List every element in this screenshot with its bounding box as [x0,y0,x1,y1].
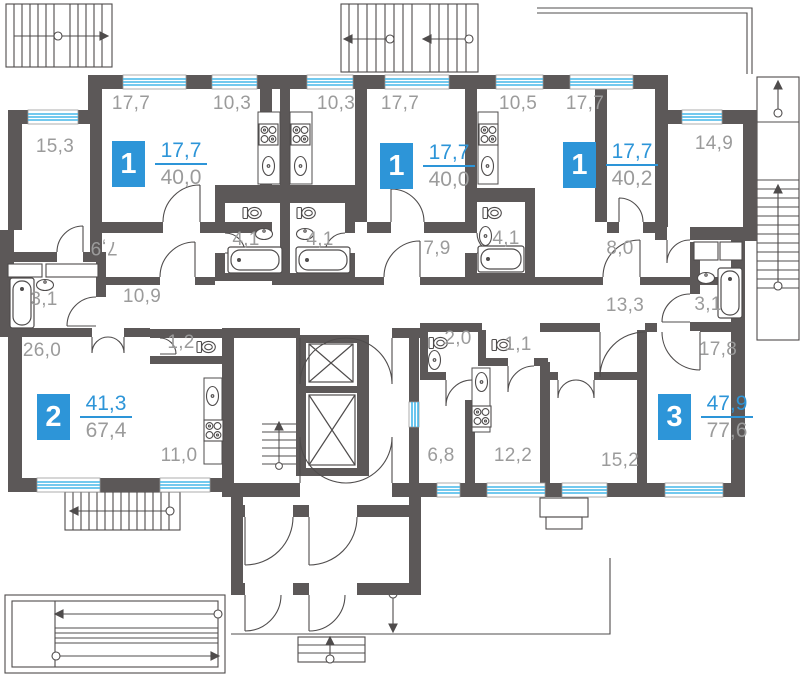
room-label: 10,3 [317,93,355,115]
staircase-right-icon [757,77,799,340]
room-label: 2,0 [444,328,471,350]
apartment-number: 1 [380,143,413,189]
staircase-top-middle-icon [341,4,478,72]
room-label: 4,1 [492,228,519,250]
staircase-bottom-left-icon [65,492,180,530]
toilet-icon [297,207,315,218]
room-label: 7,9 [90,236,117,258]
total-area: 77,6 [707,419,748,442]
living-area: 47,9 [707,392,748,415]
apartment-badge-3: 1 17,7 40,2 [563,140,658,190]
room-label: 15,2 [601,450,639,472]
area-divider [80,416,132,418]
doors [57,185,700,631]
total-area: 40,0 [161,166,202,189]
stove-icon [479,124,498,145]
elevator-icon [309,344,355,465]
living-area: 41,3 [86,392,127,415]
sink-icon [476,373,488,392]
room-label: 17,7 [566,93,604,115]
apartment-number: 1 [563,142,596,188]
room-label: 17,8 [699,339,737,361]
room-label: 6,8 [427,445,454,467]
sink-icon [480,227,492,246]
living-area: 17,7 [429,141,470,164]
room-label: 10,3 [213,93,251,115]
room-label: 3,1 [30,289,57,311]
total-area: 40,0 [429,168,470,191]
apartment-number: 1 [112,141,145,187]
apartment-badge-5: 3 47,9 77,6 [658,392,753,442]
toilet-icon [243,207,261,218]
sink-icon [482,157,494,176]
floor-plan: 15,3 17,7 10,3 10,3 17,7 10,5 17,7 14,9 … [0,0,800,675]
room-label: 10,5 [499,93,537,115]
living-area: 17,7 [612,140,653,163]
balcony-outline [537,8,752,74]
room-label: 7,9 [423,238,450,260]
room-label: 26,0 [23,340,61,362]
area-divider [155,163,207,165]
total-area: 40,2 [612,167,653,190]
living-area: 17,7 [161,139,202,162]
stove-icon [291,124,310,145]
stove-icon [472,406,491,427]
apartment-number: 2 [37,394,70,440]
sink-icon [263,157,275,176]
room-label: 10,9 [123,286,161,308]
area-divider [606,164,658,166]
sink-icon [698,273,715,284]
area-divider [423,165,475,167]
room-label: 17,7 [381,93,419,115]
room-label: 8,0 [606,238,633,260]
apartment-badge-4: 2 41,3 67,4 [37,392,132,442]
apartment-number: 3 [658,394,691,440]
total-area: 67,4 [86,419,127,442]
area-divider [701,416,753,418]
room-label: 13,3 [606,295,644,317]
staircase-top-left-icon [6,4,112,67]
room-label: 1,2 [167,332,194,354]
staircase-internal-icon [262,422,296,469]
apartment-badge-2: 1 17,7 40,0 [380,141,475,191]
room-label: 17,7 [112,93,150,115]
stove-icon [259,124,278,145]
toilet-icon [197,341,215,352]
room-label: 14,9 [695,133,733,155]
stove-icon [204,420,223,441]
room-label: 4,1 [232,229,259,251]
toilet-icon [483,207,501,218]
room-label: 15,3 [36,136,74,158]
room-label: 11,0 [161,445,198,467]
sink-icon [207,387,219,406]
ramp-icon [5,595,225,673]
room-label: 4,1 [306,229,333,251]
room-label: 1,1 [504,334,531,356]
room-label: 3,1 [694,294,721,316]
room-label: 12,2 [494,445,532,467]
sink-icon [429,351,441,370]
apartment-badge-1: 1 17,7 40,0 [112,139,207,189]
sink-icon [295,157,307,176]
